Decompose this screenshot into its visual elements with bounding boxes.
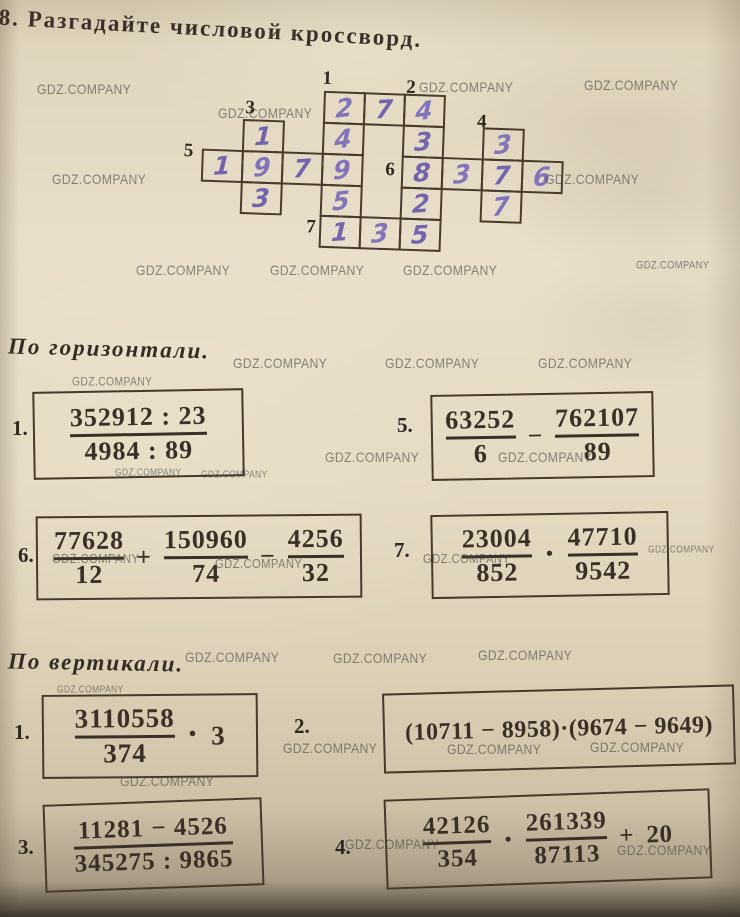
crossword-clue-number: 2 bbox=[406, 78, 416, 97]
watermark: GDZ.COMPANY bbox=[270, 262, 364, 278]
handwritten-digit: 7 bbox=[375, 96, 394, 122]
handwritten-digit: 3 bbox=[494, 131, 512, 158]
handwritten-digit: 5 bbox=[332, 187, 350, 214]
fraction: 477109542 bbox=[567, 523, 638, 585]
fraction-numerator: 352912 : 23 bbox=[70, 403, 207, 432]
crossword-cell: 1 bbox=[242, 119, 285, 153]
crossword-grid: 27414331979837635271351234567 bbox=[199, 87, 566, 257]
problem-number: 5. bbox=[397, 413, 413, 438]
handwritten-digit: 2 bbox=[412, 191, 431, 217]
expression-text: 20 bbox=[646, 821, 673, 850]
handwritten-digit: 3 bbox=[453, 160, 471, 187]
fraction-numerator: 762107 bbox=[555, 404, 639, 432]
handwritten-digit: 1 bbox=[331, 219, 350, 245]
fraction: 15096074 bbox=[164, 526, 249, 587]
fraction-denominator: 9542 bbox=[575, 557, 631, 584]
watermark: GDZ.COMPANY bbox=[283, 740, 377, 756]
fraction: 352912 : 234984 : 89 bbox=[70, 403, 208, 466]
problem-box-d3: 11281 − 4526345275 : 9865 bbox=[43, 797, 265, 893]
crossword-clue-number: 7 bbox=[306, 217, 316, 236]
heading-down: По вертикали. bbox=[8, 648, 185, 677]
crossword-clue-number: 5 bbox=[184, 141, 194, 160]
fraction: 42126354 bbox=[422, 812, 492, 873]
exercise-number: 38. bbox=[0, 4, 21, 31]
operator: − bbox=[259, 541, 277, 571]
crossword-clue-number: 4 bbox=[477, 112, 487, 131]
fraction-denominator: 345275 : 9865 bbox=[74, 846, 234, 877]
problem-number: 1. bbox=[14, 720, 30, 745]
crossword-cell: 9 bbox=[321, 153, 364, 187]
crossword-cell: 3 bbox=[482, 127, 525, 161]
fraction-denominator: 32 bbox=[302, 560, 330, 587]
crossword-cell: 7 bbox=[281, 151, 324, 185]
handwritten-digit: 7 bbox=[493, 163, 512, 189]
watermark: GDZ.COMPANY bbox=[636, 260, 709, 272]
fraction-numerator: 63252 bbox=[445, 406, 515, 434]
handwritten-digit: 5 bbox=[411, 222, 430, 248]
problem-box-d4: 42126354·26133987113+20 bbox=[384, 788, 713, 889]
fraction: 26133987113 bbox=[525, 808, 608, 869]
heading-across: По горизонтали. bbox=[8, 334, 211, 365]
fraction-numerator: 261339 bbox=[525, 808, 607, 836]
handwritten-digit: 4 bbox=[415, 97, 433, 124]
fraction-numerator: 23004 bbox=[462, 525, 532, 553]
crossword-cell: 1 bbox=[201, 149, 244, 183]
watermark: GDZ.COMPANY bbox=[538, 355, 632, 371]
crossword-cell: 7 bbox=[363, 92, 406, 126]
problem-box-a5: 632526−76210789 bbox=[430, 391, 654, 481]
problem-number: 3. bbox=[18, 835, 34, 860]
crossword-cell: 4 bbox=[322, 122, 365, 156]
expression-text: (10711 − 8958)·(9674 − 9649) bbox=[405, 711, 714, 746]
watermark: GDZ.COMPANY bbox=[57, 684, 124, 695]
crossword-cell: 5 bbox=[320, 184, 363, 218]
fraction: 76210789 bbox=[555, 404, 640, 466]
problem-number: 6. bbox=[18, 543, 34, 568]
fraction-denominator: 89 bbox=[583, 439, 611, 466]
fraction-numerator: 3110558 bbox=[75, 705, 175, 733]
crossword-cell: 3 bbox=[402, 125, 445, 159]
fraction-denominator: 12 bbox=[75, 562, 103, 589]
watermark: GDZ.COMPANY bbox=[52, 171, 146, 187]
watermark: GDZ.COMPANY bbox=[325, 449, 419, 465]
handwritten-digit: 3 bbox=[371, 220, 389, 247]
problem-box-a7: 23004852·477109542 bbox=[430, 511, 669, 599]
crossword-clue-number: 6 bbox=[385, 160, 395, 179]
crossword-clue-number: 3 bbox=[245, 98, 255, 117]
problem-number: 7. bbox=[394, 538, 410, 563]
crossword-cell: 3 bbox=[359, 216, 402, 250]
exercise-title: Разгадайте числовой кроссворд. bbox=[27, 6, 423, 52]
fraction-numerator: 150960 bbox=[164, 526, 248, 553]
watermark: GDZ.COMPANY bbox=[478, 647, 572, 663]
handwritten-digit: 1 bbox=[213, 153, 232, 179]
crossword-clue-number: 1 bbox=[322, 69, 332, 88]
handwritten-digit: 4 bbox=[334, 125, 352, 152]
fraction-denominator: 87113 bbox=[534, 841, 601, 869]
handwritten-digit: 9 bbox=[333, 156, 351, 183]
handwritten-digit: 6 bbox=[533, 163, 551, 190]
crossword-cell: 2 bbox=[323, 91, 366, 125]
fraction: 425632 bbox=[288, 525, 345, 586]
fraction: 7762812 bbox=[54, 527, 125, 588]
problem-number: 2. bbox=[294, 714, 310, 739]
watermark: GDZ.COMPANY bbox=[72, 376, 152, 389]
watermark: GDZ.COMPANY bbox=[333, 650, 427, 666]
page-title: 38. Разгадайте числовой кроссворд. bbox=[0, 4, 423, 53]
problem-box-a1: 352912 : 234984 : 89 bbox=[32, 388, 245, 480]
crossword-cell: 4 bbox=[403, 94, 446, 128]
crossword-cell: 7 bbox=[480, 189, 523, 223]
crossword-cell: 6 bbox=[521, 160, 564, 194]
watermark: GDZ.COMPANY bbox=[233, 355, 327, 371]
fraction: 632526 bbox=[445, 406, 516, 468]
crossword-cell: 1 bbox=[319, 215, 362, 249]
crossword-cell: 3 bbox=[240, 181, 283, 215]
fraction-denominator: 354 bbox=[437, 845, 478, 872]
problem-number: 4. bbox=[335, 835, 351, 860]
handwritten-digit: 7 bbox=[293, 156, 312, 182]
problem-box-d2: (10711 − 8958)·(9674 − 9649) bbox=[382, 684, 736, 773]
handwritten-digit: 8 bbox=[413, 160, 432, 186]
fraction-numerator: 77628 bbox=[54, 527, 124, 554]
watermark: GDZ.COMPANY bbox=[136, 262, 230, 278]
fraction-denominator: 4984 : 89 bbox=[84, 437, 193, 465]
operator: + bbox=[135, 542, 153, 572]
handwritten-digit: 7 bbox=[492, 193, 510, 220]
fraction-denominator: 6 bbox=[474, 441, 488, 468]
watermark: GDZ.COMPANY bbox=[185, 649, 279, 665]
expression-text: 3 bbox=[211, 720, 225, 751]
fraction-numerator: 4256 bbox=[288, 525, 344, 552]
watermark: GDZ.COMPANY bbox=[385, 355, 479, 371]
problem-box-d1: 3110558374·3 bbox=[42, 693, 259, 779]
operator: + bbox=[618, 822, 636, 851]
crossword-cell: 7 bbox=[481, 158, 524, 192]
handwritten-digit: 1 bbox=[254, 123, 273, 149]
watermark: GDZ.COMPANY bbox=[37, 81, 131, 97]
fraction: 3110558374 bbox=[75, 705, 176, 768]
crossword-cell: 9 bbox=[241, 150, 284, 184]
handwritten-digit: 3 bbox=[252, 185, 271, 211]
fraction-denominator: 852 bbox=[476, 559, 518, 586]
watermark: GDZ.COMPANY bbox=[584, 77, 678, 93]
fraction-denominator: 74 bbox=[192, 561, 220, 588]
problem-box-a6: 7762812+15096074−425632 bbox=[36, 514, 363, 601]
problem-number: 1. bbox=[12, 416, 28, 441]
fraction-numerator: 42126 bbox=[422, 812, 490, 840]
crossword-cell: 5 bbox=[399, 218, 442, 252]
crossword-cell: 8 bbox=[401, 156, 444, 190]
fraction: 23004852 bbox=[462, 525, 533, 587]
watermark: GDZ.COMPANY bbox=[403, 262, 497, 278]
operator: − bbox=[526, 421, 544, 451]
fraction: 11281 − 4526345275 : 9865 bbox=[73, 813, 234, 877]
crossword-cell: 2 bbox=[400, 187, 443, 221]
book-page: 38. Разгадайте числовой кроссворд. 27414… bbox=[0, 0, 740, 917]
handwritten-digit: 9 bbox=[253, 154, 271, 181]
crossword-cell: 3 bbox=[441, 157, 484, 191]
watermark: GDZ.COMPANY bbox=[419, 79, 513, 95]
handwritten-digit: 2 bbox=[335, 94, 353, 121]
fraction-numerator: 47710 bbox=[567, 523, 637, 551]
fraction-numerator: 11281 − 4526 bbox=[78, 813, 229, 844]
fraction-denominator: 374 bbox=[103, 740, 147, 768]
handwritten-digit: 3 bbox=[414, 129, 433, 155]
